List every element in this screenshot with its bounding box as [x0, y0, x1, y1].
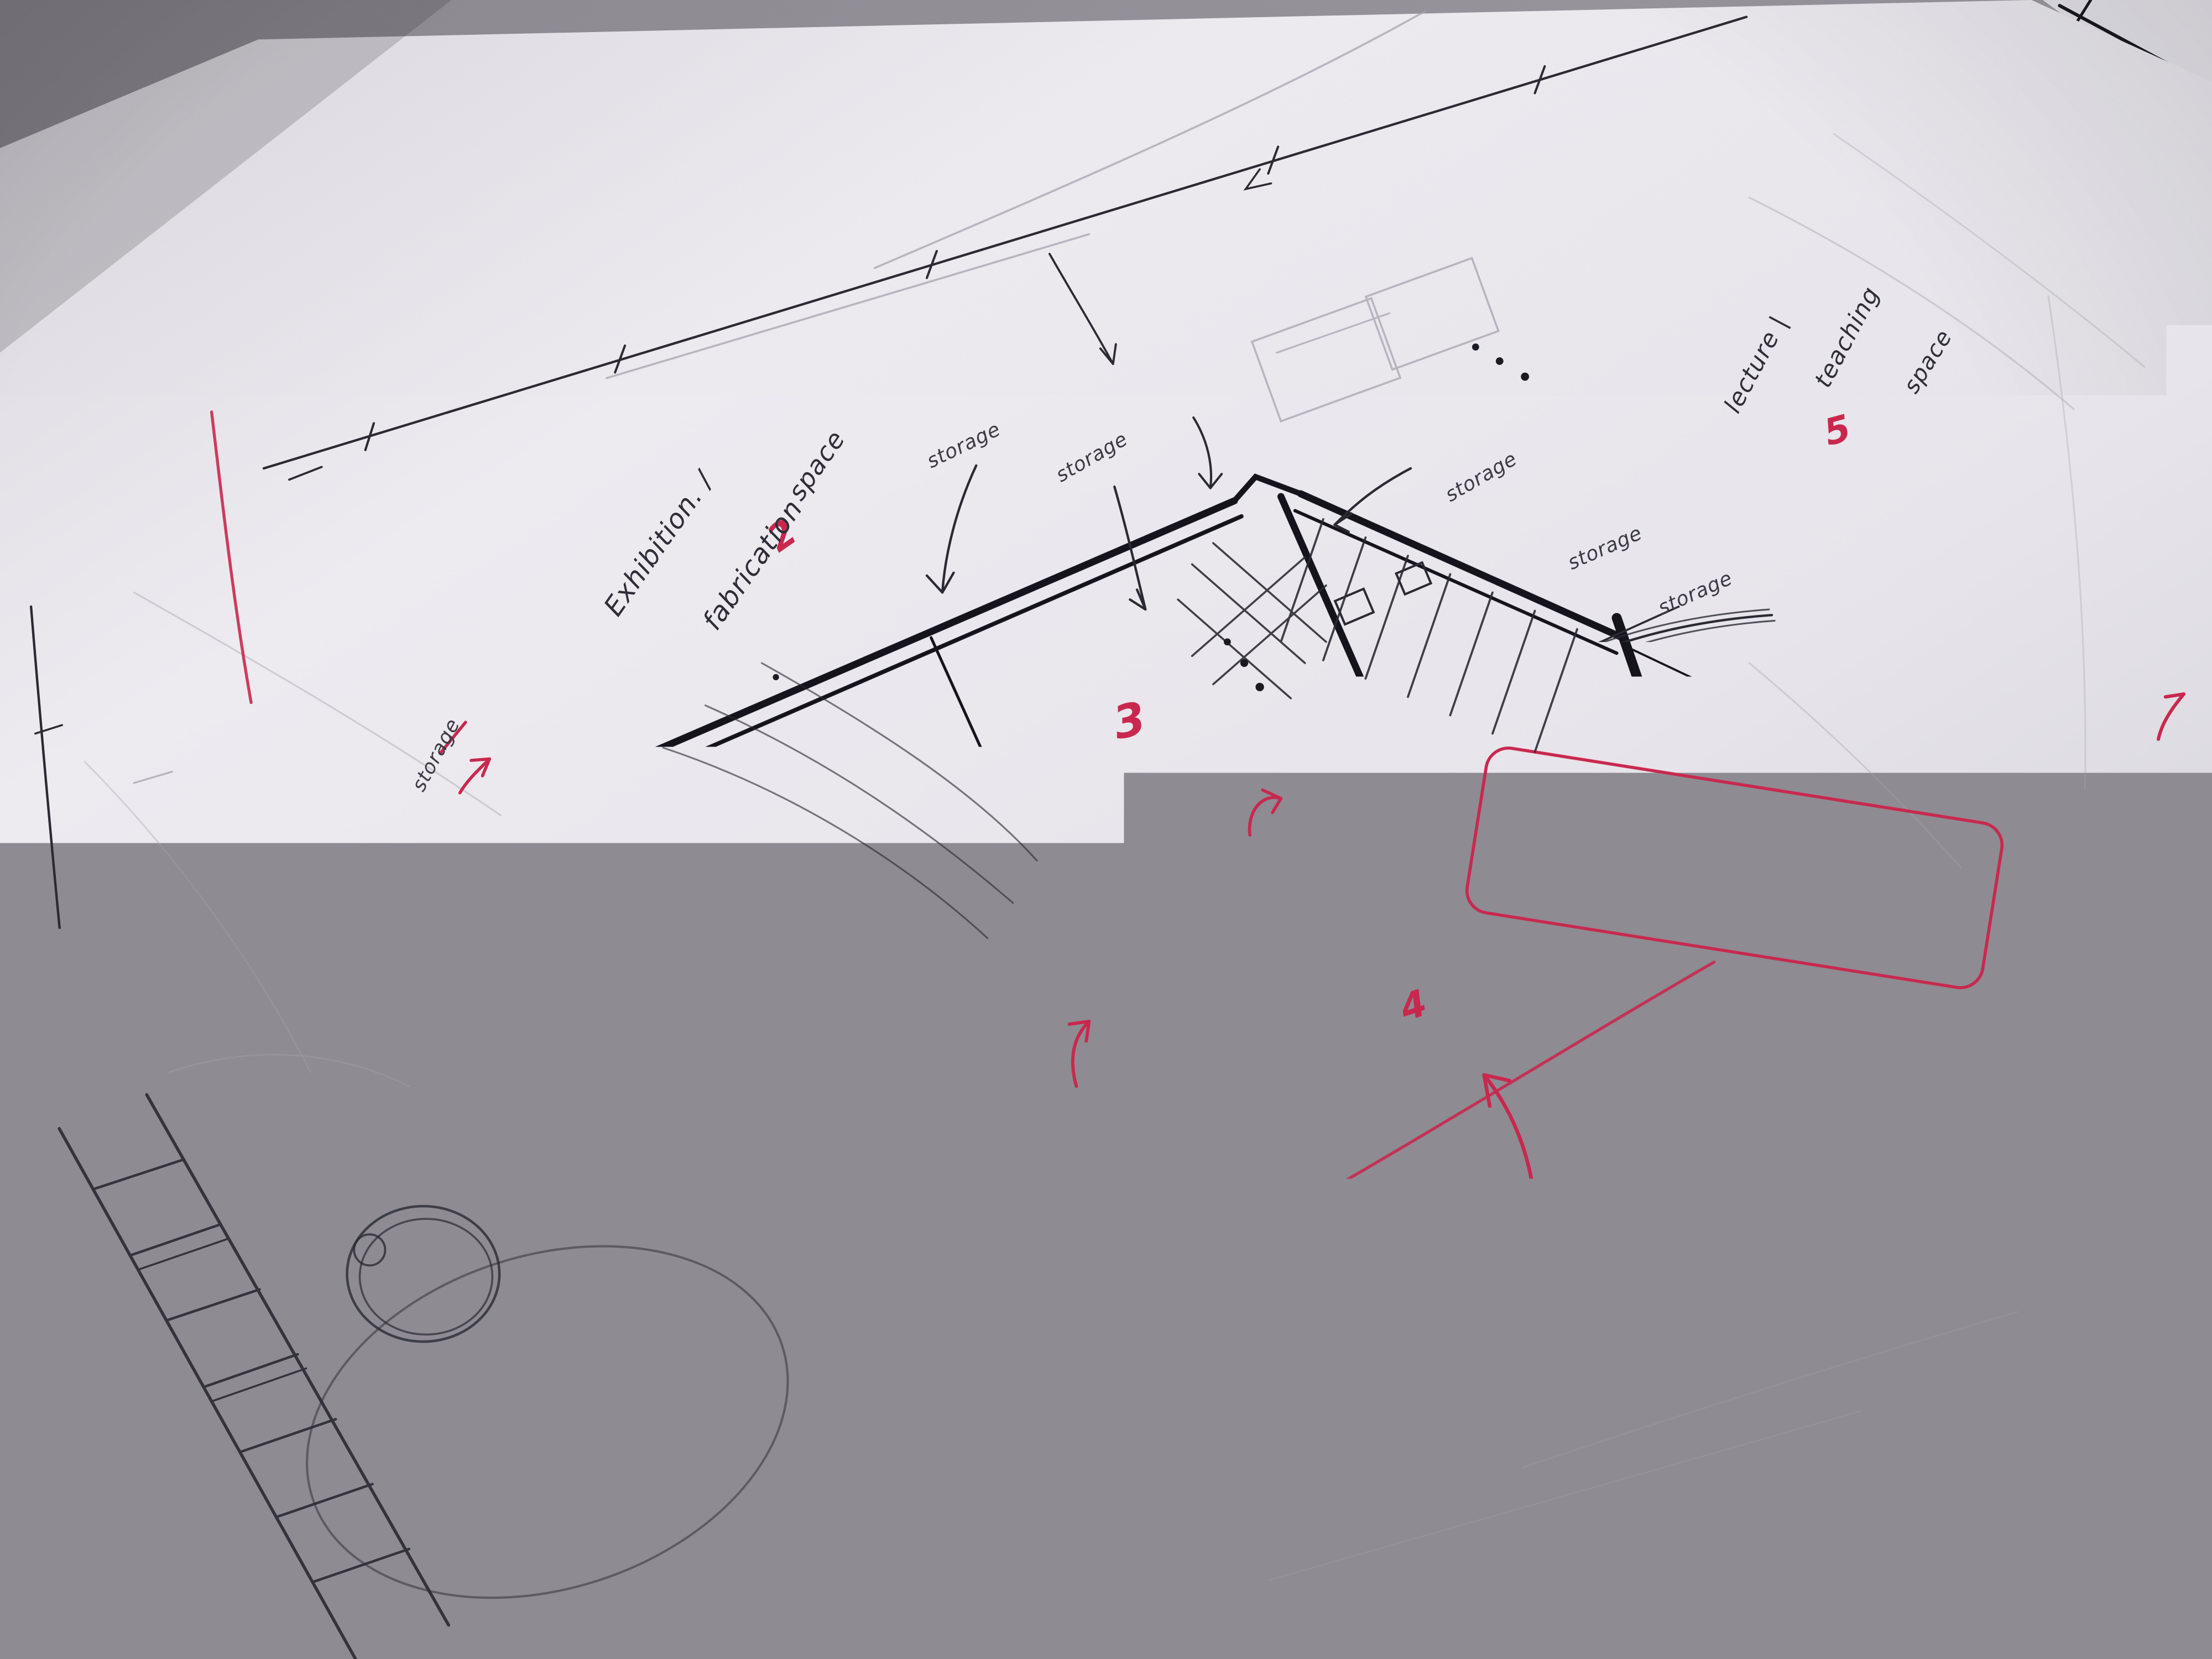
grain-overlay — [0, 0, 2212, 1659]
sketch-canvas: 1 2 3 4 5 — [0, 0, 2212, 1659]
photo-of-architectural-sketch: 1 2 3 4 5 — [0, 0, 2212, 1659]
